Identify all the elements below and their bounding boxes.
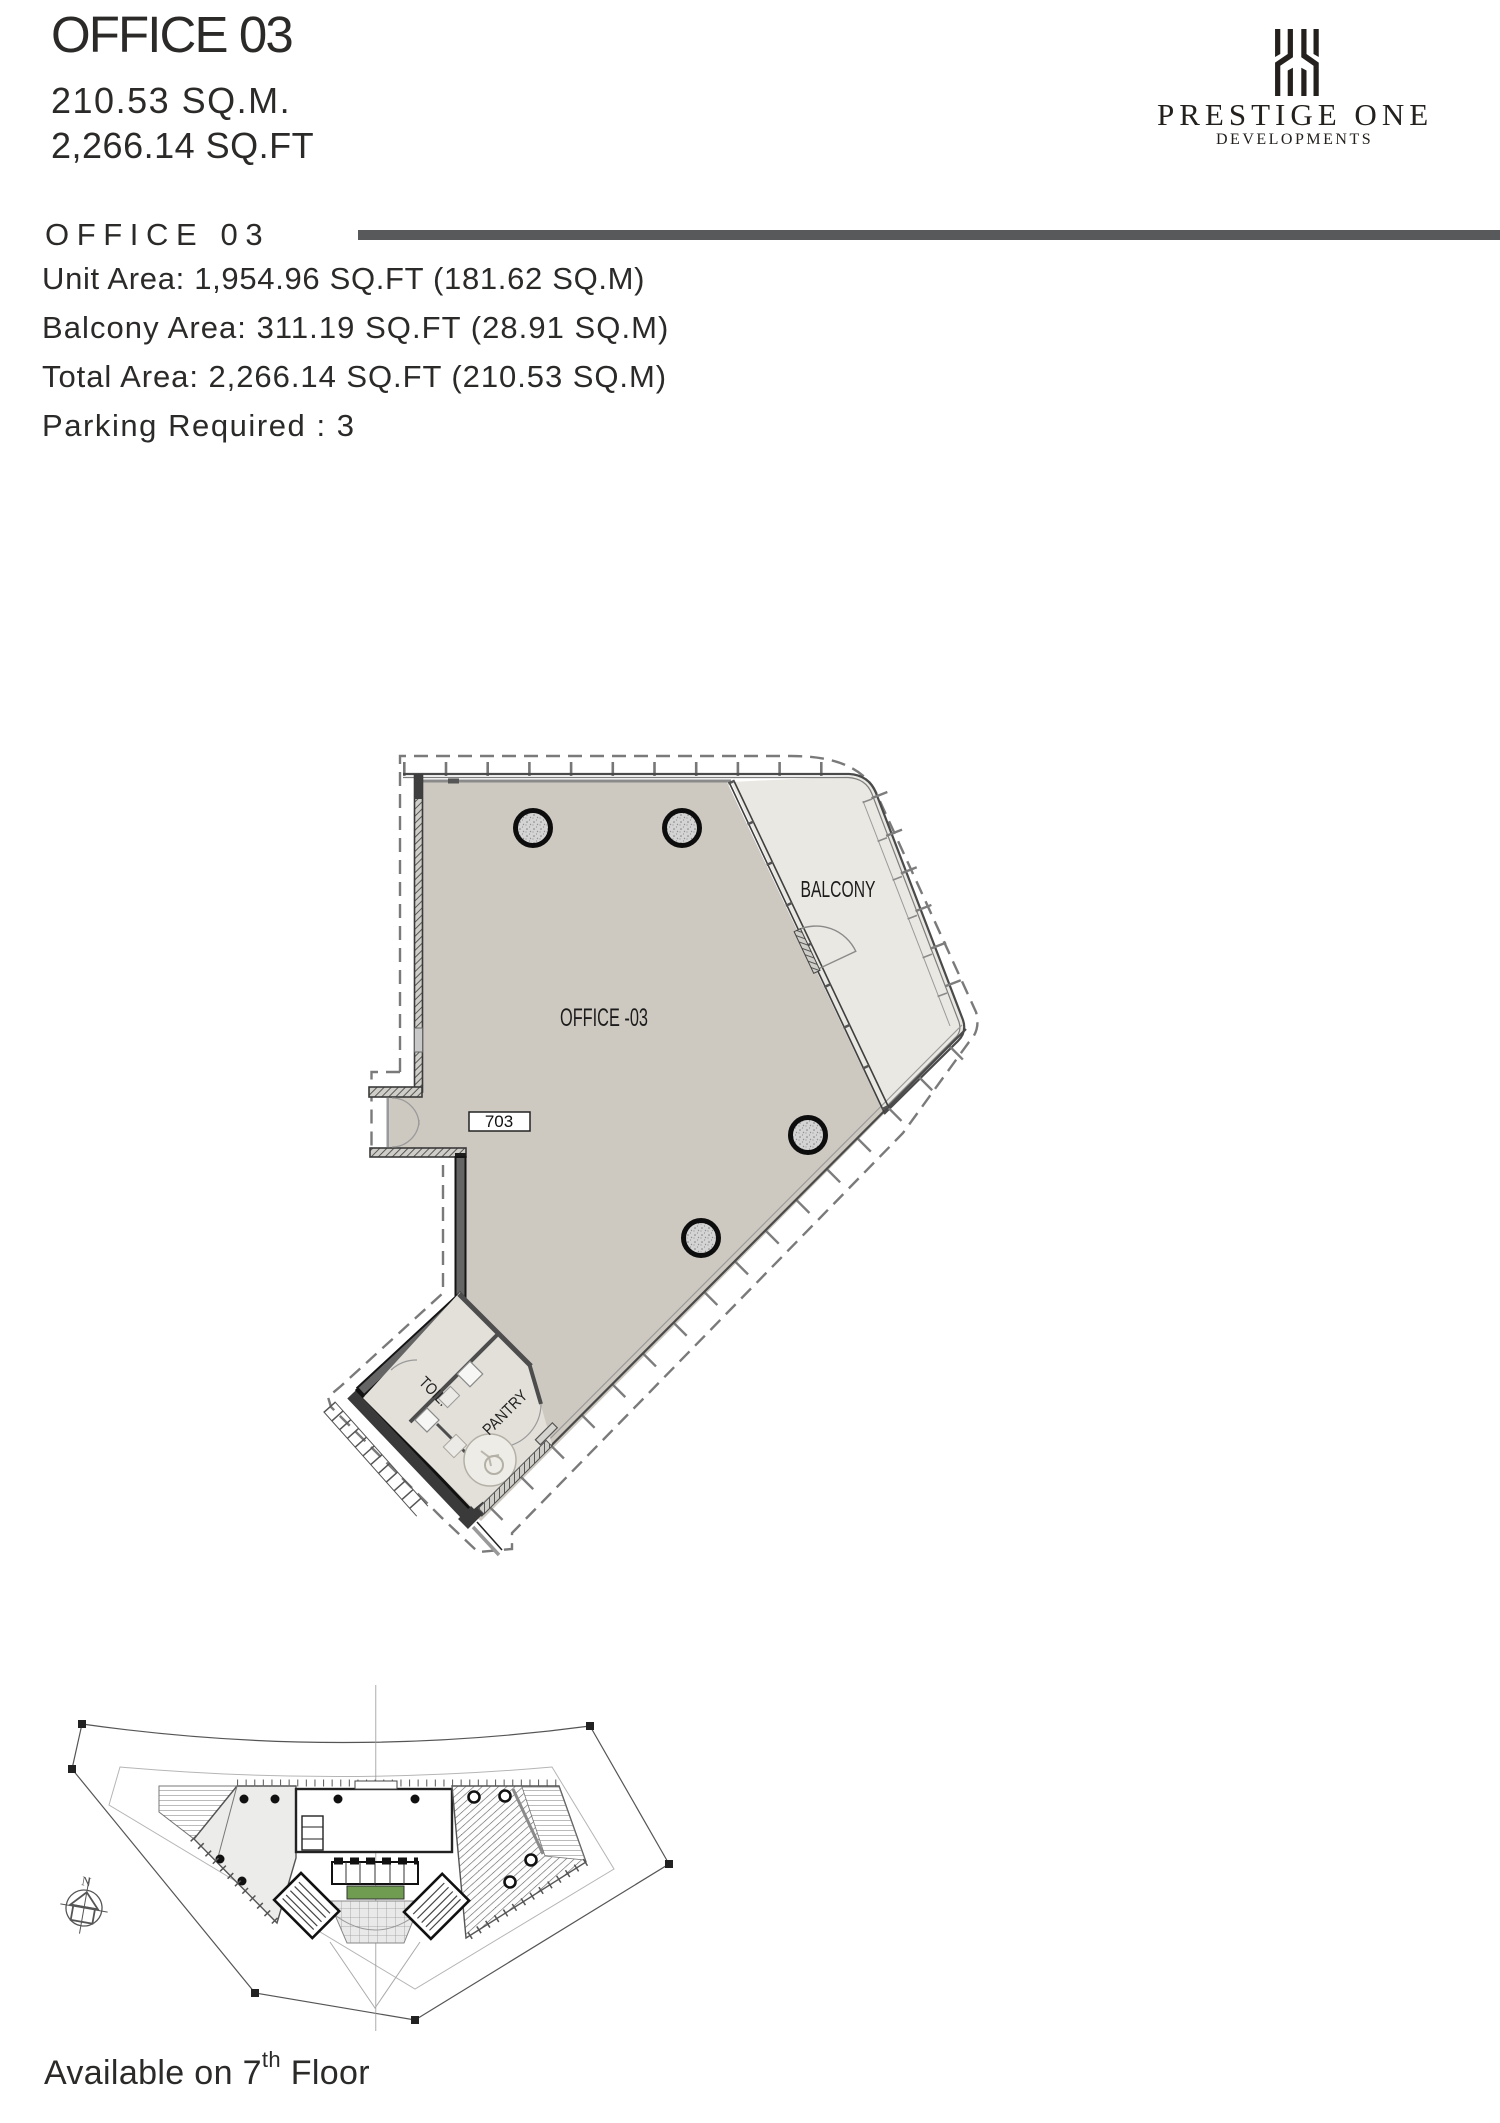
svg-text:OFFICE -03: OFFICE -03 xyxy=(560,1004,648,1032)
svg-text:703: 703 xyxy=(485,1112,513,1131)
svg-text:BALCONY: BALCONY xyxy=(801,876,876,902)
svg-text:N: N xyxy=(81,1873,93,1890)
